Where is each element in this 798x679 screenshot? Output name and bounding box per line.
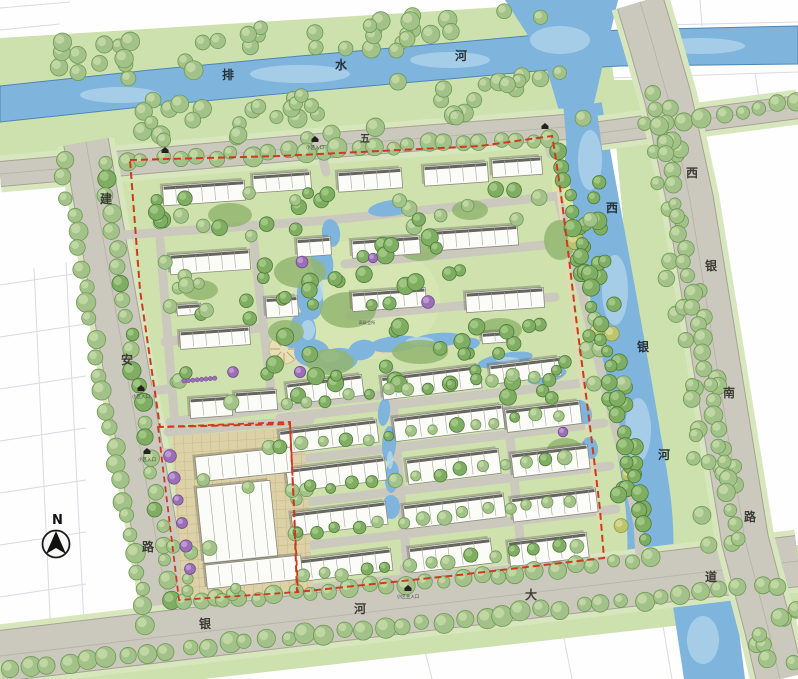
tree-icon [456,335,464,343]
tree-icon [508,184,515,191]
tree-icon [615,595,622,602]
tree-icon [659,136,667,144]
tree-icon [609,556,615,562]
tree-icon [367,301,373,307]
tree-icon [543,498,549,504]
tree-icon [587,302,593,308]
tree-icon [364,436,369,441]
tree-icon [435,470,441,476]
tree-icon [368,120,377,129]
tree-icon [197,37,204,44]
tree-icon [111,242,119,250]
tree-icon [396,620,404,628]
tree-icon [470,320,478,328]
tree-icon [165,301,172,308]
tree-icon [385,432,390,437]
tree-icon [788,657,795,664]
tree-icon [440,12,449,21]
tree-icon [83,312,90,319]
tree-icon [365,390,370,395]
tree-icon [712,423,720,431]
tree-icon [72,66,80,74]
tree-icon [465,549,472,556]
tree-icon [538,386,544,392]
tree-icon [244,313,251,320]
tree-icon [692,318,700,326]
tree-icon [291,196,297,202]
tree-icon [435,343,442,350]
tree-icon [261,146,269,154]
tree-icon [355,522,361,528]
tree-icon [437,135,445,143]
tree-icon [296,625,306,635]
tree-icon [111,260,119,268]
tree-icon [109,440,118,449]
residential-slab [250,169,312,194]
tree-icon [238,635,245,642]
tree-icon [137,584,144,591]
tree-icon [659,147,667,155]
tree-icon [114,40,121,47]
parcel-line [0,2,70,8]
purple-hedge-icon [213,376,217,380]
tree-icon [643,550,652,559]
tree-icon [340,434,347,441]
tree-icon [686,286,695,295]
tree-icon [211,153,219,161]
tree-icon [593,596,602,605]
tree-icon [571,541,578,548]
tree-icon [693,110,703,120]
tree-icon [501,326,508,333]
tree-icon [506,504,512,510]
tree-icon [312,528,318,534]
tree-icon [147,94,155,102]
tree-icon [544,375,551,382]
tree-icon [771,96,779,104]
tree-icon [116,294,124,302]
tree-icon [302,398,308,404]
tree-icon [168,541,175,548]
tree-icon [296,90,303,97]
tree-icon [243,482,249,488]
tree-icon [362,564,368,570]
tree-icon [619,427,626,434]
tree-icon [511,214,518,221]
tree-icon [89,332,98,341]
tree-icon [451,419,458,426]
tree-icon [103,421,111,429]
residential-slab [335,165,403,192]
tree-icon [320,397,326,403]
tree-icon [282,143,290,151]
tree-icon [149,504,156,511]
tree-icon [652,119,661,128]
tree-icon [332,371,338,377]
tree-icon [262,369,268,375]
tree-icon [472,136,480,144]
tree-icon [391,75,399,83]
tree-icon [451,112,458,119]
tree-icon [179,55,186,62]
tree-icon [511,413,516,418]
tree-icon [296,438,303,445]
tree-icon [655,591,662,598]
tree-icon [234,118,241,125]
road-name-char: 银 [199,616,212,631]
tree-icon [760,652,769,661]
tree-icon [158,521,164,527]
tree-icon [484,503,490,509]
tree-icon [637,517,645,525]
tree-icon [308,26,316,34]
road-name-char: 路 [142,539,155,554]
water-highlight [530,26,590,54]
tree-icon [63,656,73,666]
tree-icon [666,178,675,187]
tree-icon [676,115,685,124]
tree-icon [401,33,409,41]
river-name-char: 河 [454,48,467,63]
tree-icon [566,221,575,230]
river-name-char: 西 [606,201,618,215]
tree-icon [58,153,67,162]
tree-icon [150,486,158,494]
tree-icon [478,461,484,467]
tree-icon [201,641,210,650]
residential-slab [421,159,489,186]
tree-icon [97,38,106,47]
tree-icon [179,271,186,278]
tree-icon [693,584,702,593]
tree-icon [164,593,173,602]
tree-icon [524,321,531,328]
entrance-label: 小区主入口 [397,593,420,600]
tree-icon [566,191,572,197]
tree-icon [494,349,500,355]
tree-icon [100,158,107,165]
tree-icon [319,437,324,442]
tree-icon [81,281,88,288]
tree-icon [55,35,64,44]
tree-icon [165,451,171,457]
tree-icon [186,63,195,72]
tree-icon [388,143,395,150]
tree-icon [278,330,287,339]
tree-icon [457,507,463,513]
tree-icon [146,117,153,124]
tree-icon [611,392,619,400]
tree-icon [133,380,140,387]
tree-icon [606,361,612,367]
tree-icon [534,602,542,610]
tree-icon [559,428,564,433]
tree-icon [160,555,166,561]
tree-icon [378,620,388,630]
tree-icon [190,150,198,158]
tree-icon [100,172,109,181]
tree-icon [297,257,303,263]
tree-icon [402,139,409,146]
tree-icon [719,485,728,494]
tree-icon [385,239,393,247]
tree-icon [213,221,221,229]
parcel-line [0,584,86,597]
tree-icon [93,371,100,378]
tree-icon [306,481,312,487]
water-highlight [687,616,719,664]
tree-icon [458,137,466,145]
tree-icon [291,224,297,230]
tree-icon [222,634,233,645]
tree-icon [427,558,433,564]
tree-icon [117,51,126,60]
tree-icon [472,375,478,381]
road-name-char: 建 [99,191,113,206]
tree-icon [494,608,504,618]
tree-icon [310,42,317,49]
tree-icon [429,426,434,431]
tree-icon [754,629,761,636]
tree-icon [186,565,191,570]
tree-icon [175,210,183,218]
tree-icon [574,250,582,258]
tree-icon [93,57,101,65]
tree-icon [185,642,192,649]
tree-icon [78,295,88,305]
site-plan-map: 小区入口小区入口小区入口小区主入口 排水河西银河建安路银河大道西银南路五高级会所… [0,0,798,679]
tree-icon [357,268,365,276]
tree-icon [274,441,281,448]
tree-icon [259,631,268,640]
tree-icon [320,568,325,573]
road-name-char: 西 [686,166,698,180]
tree-icon [447,380,452,385]
tree-icon [402,384,408,390]
parcel-line [0,24,60,30]
tree-icon [128,329,134,335]
tree-icon [412,472,417,477]
purple-hedge-icon [191,378,195,382]
tree-icon [413,214,420,221]
tree-icon [672,587,682,597]
purple-hedge-icon [186,378,190,382]
tree-icon [501,461,506,466]
tree-icon [340,43,347,50]
tree-icon [327,485,332,490]
clubhouse-label: 高级会所 [359,319,376,326]
tree-icon [303,348,311,356]
tree-icon [282,399,288,405]
tree-icon [124,343,132,351]
tree-icon [336,570,343,577]
tree-icon [69,210,76,217]
tree-icon [522,457,528,463]
tree-icon [479,79,486,86]
tree-icon [204,542,211,549]
tree-icon [633,486,642,495]
tree-icon [671,210,678,217]
tree-icon [373,517,379,523]
tree-icon [284,633,291,640]
road-name-char: 大 [525,587,537,602]
tree-icon [691,430,698,437]
tree-icon [688,453,695,460]
tree-icon [670,199,676,205]
purple-hedge-icon [199,377,203,381]
tree-icon [595,318,603,326]
tree-icon [306,100,313,107]
parcel-line [0,324,86,337]
tree-icon [137,618,146,627]
tree-icon [94,383,104,393]
tree-icon [329,273,336,280]
tree-icon [729,518,736,525]
road-name-char: 路 [744,509,757,524]
tree-icon [140,646,150,656]
tree-icon [589,193,595,199]
tree-icon [577,239,583,245]
tree-icon [789,95,798,104]
tree-icon [123,34,132,43]
tree-icon [695,508,704,517]
tree-icon [594,177,601,184]
tree-icon [344,390,350,396]
tree-icon [160,257,167,264]
tree-icon [577,112,585,120]
tree-icon [304,189,310,195]
tree-icon [584,331,590,337]
tree-icon [612,488,620,496]
tree-icon [393,320,402,329]
parcel-line [0,376,86,389]
tree-icon [637,594,647,604]
tree-icon [150,206,158,214]
tree-icon [407,426,413,432]
tree-icon [639,118,646,125]
tree-icon [725,505,731,511]
road-name-char: 河 [353,601,366,616]
tree-icon [498,5,505,12]
tree-icon [463,200,469,206]
tree-icon [703,456,711,464]
tree-icon [535,12,542,19]
tree-icon [308,300,314,306]
tree-icon [404,560,411,567]
tree-icon [253,101,260,108]
tree-icon [376,239,384,247]
tree-icon [390,475,397,482]
road-name-char: 银 [705,258,718,273]
tree-icon [719,456,726,463]
tree-icon [696,331,705,340]
tree-icon [105,225,113,233]
tree-icon [180,279,188,287]
tree-icon [718,108,726,116]
tree-icon [423,297,429,303]
tree-icon [183,586,189,592]
tree-icon [547,393,553,399]
tree-icon [302,133,309,140]
tree-icon [225,147,231,153]
tree-icon [157,539,165,547]
tree-icon [509,546,515,552]
purple-hedge-icon [204,377,208,381]
tree-icon [454,463,461,470]
tree-icon [179,192,186,199]
master-plan-canvas: 小区入口小区入口小区入口小区主入口 排水河西银河建安路银河大道西银南路五高级会所… [0,0,798,679]
tree-icon [522,501,527,506]
tree-icon [697,362,705,370]
tree-icon [135,598,144,607]
tree-icon [23,658,33,668]
tree-icon [493,571,500,578]
tree-icon [200,305,207,312]
tree-icon [358,251,364,257]
tree-icon [338,624,346,632]
tree-icon [232,584,237,589]
tree-icon [71,224,80,233]
tree-icon [315,627,325,637]
tree-icon [730,580,739,589]
tree-icon [114,277,122,285]
tree-icon [753,103,760,110]
tree-icon [468,94,476,102]
tree-icon [487,376,493,382]
tree-icon [579,599,586,606]
tree-icon [455,266,461,272]
road-name-char: 道 [705,569,717,584]
tree-icon [183,574,188,579]
tree-icon [603,376,611,384]
tree-icon [459,349,465,355]
tree-icon [618,439,627,448]
tree-icon [423,384,429,390]
tree-icon [242,28,250,36]
tree-icon [652,178,659,185]
tree-icon [581,343,590,352]
tree-icon [501,78,509,86]
tree-icon [615,520,622,527]
tree-icon [169,473,175,479]
compass-n-label: N [52,513,63,528]
tree-icon [501,390,509,398]
tree-icon [585,214,592,221]
tree-icon [423,230,432,239]
residential-slab [489,154,543,178]
tree-icon [554,540,561,547]
tree-icon [611,409,619,417]
tree-icon [122,649,130,657]
tree-icon [186,114,194,122]
road-name-char: 安 [121,352,133,367]
tree-icon [527,563,536,572]
tree-icon [380,563,385,568]
tree-icon [442,557,449,564]
tree-icon [649,146,656,153]
tree-icon [113,473,122,482]
tree-icon [677,256,684,263]
tree-icon [770,580,779,589]
purple-hedge-icon [195,378,199,382]
parcel-line [700,0,702,26]
tree-icon [108,457,117,466]
tree-icon [121,154,130,163]
tree-icon [138,430,146,438]
tree-icon [479,610,489,620]
tree-icon [663,102,671,110]
tree-icon [259,273,265,279]
